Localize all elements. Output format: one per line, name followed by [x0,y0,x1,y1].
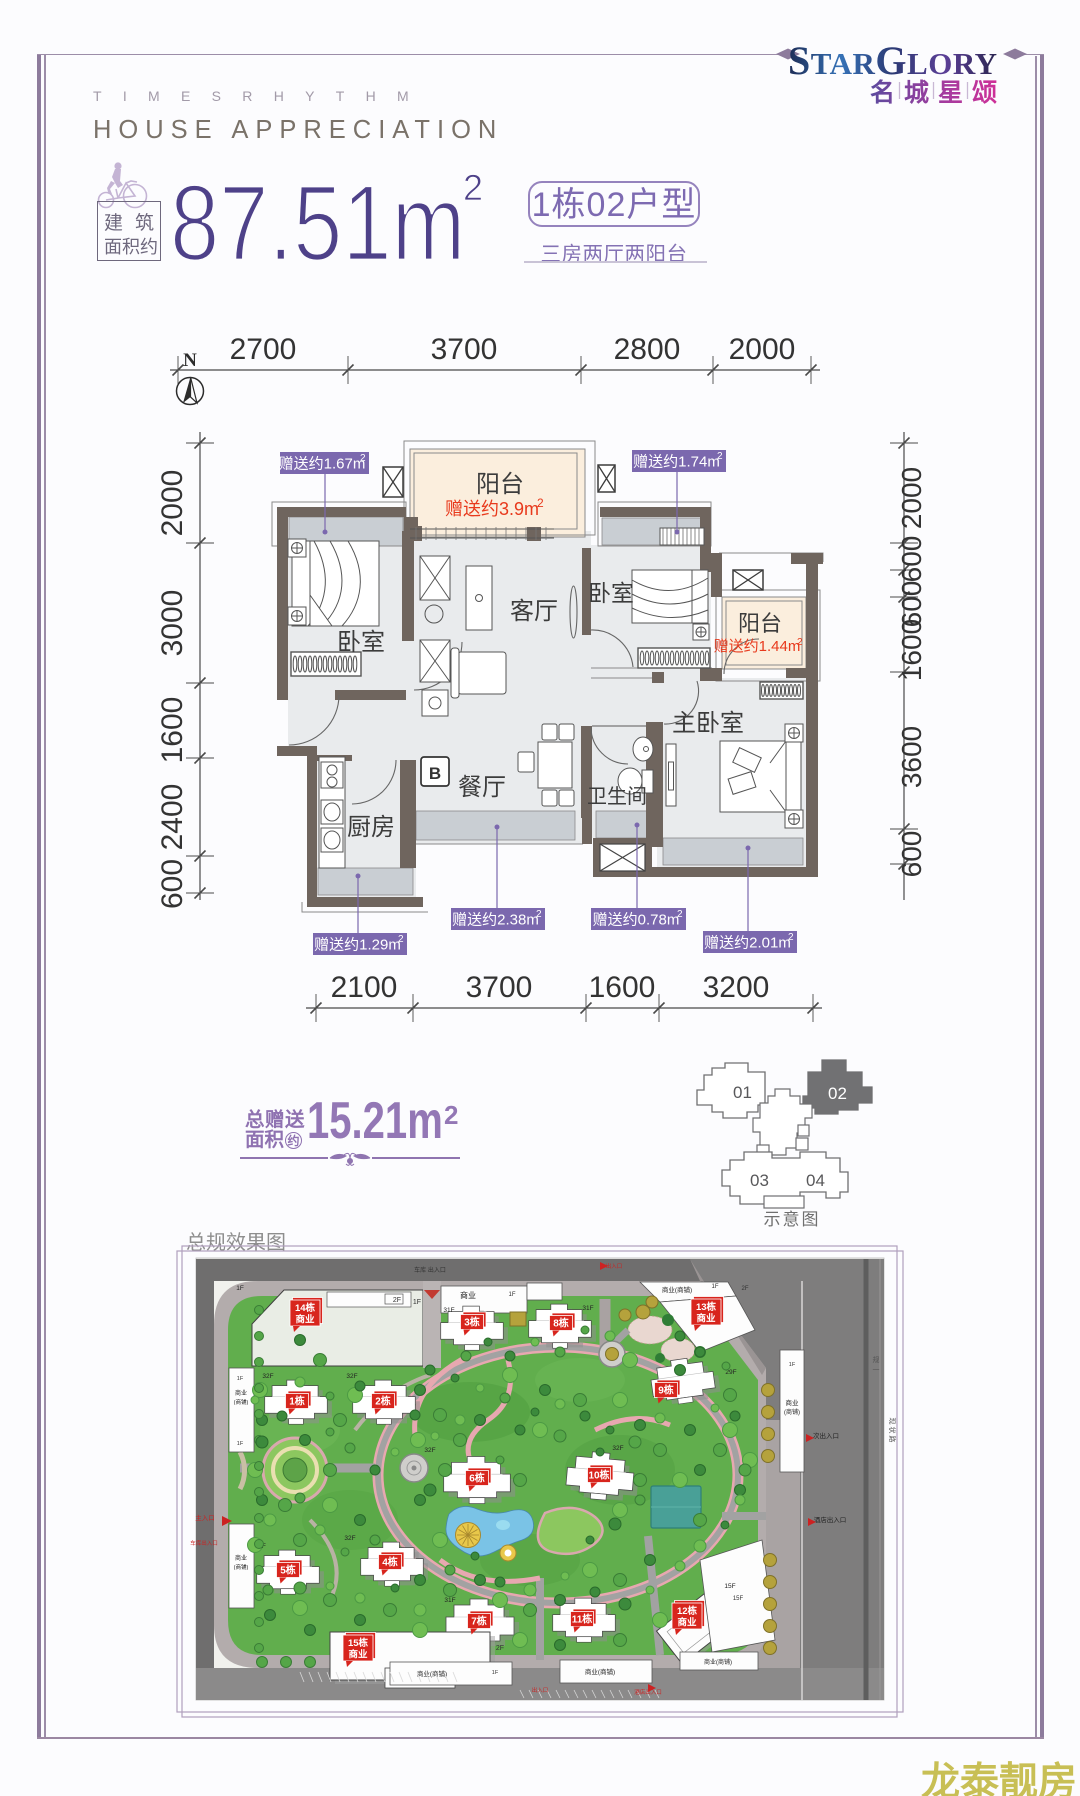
svg-text:7栋: 7栋 [471,1615,487,1628]
svg-text:赠送约1.67m: 赠送约1.67m [279,456,366,473]
svg-text:赠送约2.01m: 赠送约2.01m [704,935,791,952]
svg-text:赠送约2.38m: 赠送约2.38m [452,912,539,929]
svg-text:1600: 1600 [896,619,927,681]
svg-text:32F: 32F [424,1447,435,1454]
svg-text:1F: 1F [789,1362,796,1368]
svg-text:31F: 31F [443,1307,454,1314]
svg-text:1600: 1600 [156,697,189,764]
svg-text:31F: 31F [582,1305,593,1312]
svg-text:赠送约0.78m: 赠送约0.78m [593,912,680,929]
svg-text:酒店出入口: 酒店出入口 [814,1515,847,1524]
svg-text:次出入口: 次出入口 [813,1431,839,1440]
svg-text:卫生间: 卫生间 [587,785,647,808]
svg-text:1F: 1F [236,1285,244,1292]
svg-text:1F: 1F [508,1292,515,1298]
svg-text:2F: 2F [496,1645,504,1652]
svg-text:卧室: 卧室 [588,580,634,606]
svg-text:(商铺): (商铺) [234,1398,249,1406]
svg-text:5栋: 5栋 [280,1564,296,1577]
svg-text:1F: 1F [711,1284,718,1290]
svg-text:600: 600 [896,831,927,878]
svg-text:12栋: 12栋 [677,1605,698,1617]
svg-text:餐厅: 餐厅 [458,774,506,801]
svg-text:1600: 1600 [589,971,656,1004]
svg-text:2F: 2F [393,1297,401,1304]
svg-text:STARGLORY: STARGLORY [788,38,998,83]
svg-text:03: 03 [750,1171,769,1190]
svg-text:商业(商铺): 商业(商铺) [417,1669,447,1678]
svg-text:1F: 1F [237,1441,244,1447]
svg-text:4栋: 4栋 [382,1556,398,1569]
svg-text:1栋: 1栋 [289,1395,305,1408]
svg-text:(商铺): (商铺) [784,1408,800,1416]
svg-text:车库 出入口: 车库 出入口 [414,1266,446,1274]
svg-text:600: 600 [156,859,189,909]
svg-text:13栋: 13栋 [696,1301,717,1313]
svg-text:2: 2 [536,909,542,920]
svg-text:04: 04 [806,1171,825,1190]
svg-text:15F: 15F [724,1583,735,1590]
svg-text:3600: 3600 [896,726,927,788]
svg-text:3栋: 3栋 [464,1316,480,1329]
svg-text:1F: 1F [413,1299,421,1306]
svg-text:14栋: 14栋 [295,1302,316,1314]
svg-text:示意图: 示意图 [764,1210,821,1229]
svg-text:商业: 商业 [460,1290,476,1300]
svg-text:2: 2 [717,451,723,462]
svg-text:商业: 商业 [696,1313,716,1325]
svg-text:2100: 2100 [331,971,398,1004]
svg-text:商业: 商业 [786,1398,800,1407]
svg-text:2F: 2F [741,1286,748,1292]
svg-text:名城星颂: 名城星颂 [870,78,1006,106]
svg-text:3000: 3000 [156,590,189,657]
svg-text:厨房: 厨房 [347,814,395,841]
svg-text:商业(商铺): 商业(商铺) [662,1285,692,1294]
svg-text:10栋: 10栋 [588,1469,609,1482]
svg-text:(商铺): (商铺) [234,1563,249,1571]
svg-text:客厅: 客厅 [510,598,558,625]
svg-text:1F: 1F [237,1376,244,1382]
svg-text:11栋: 11栋 [572,1613,593,1626]
svg-text:2000: 2000 [156,470,189,537]
svg-text:9栋: 9栋 [658,1384,674,1397]
svg-text:32F: 32F [344,1535,355,1542]
svg-text:阳台: 阳台 [476,471,524,498]
svg-text:2: 2 [797,637,803,648]
svg-text:3700: 3700 [431,333,498,366]
svg-text:8栋: 8栋 [553,1317,569,1330]
svg-text:01: 01 [733,1083,752,1102]
svg-text:1F: 1F [492,1670,499,1676]
svg-text:02: 02 [828,1084,847,1103]
svg-text:15F: 15F [733,1596,744,1602]
svg-text:2: 2 [398,934,404,945]
svg-text:600: 600 [896,536,927,583]
svg-text:15栋: 15栋 [348,1637,369,1649]
svg-text:出入口: 出入口 [532,1686,549,1694]
svg-text:商业: 商业 [235,1554,247,1562]
svg-text:2400: 2400 [156,784,189,851]
svg-text:2800: 2800 [614,333,681,366]
svg-text:商业: 商业 [295,1314,315,1326]
svg-text:车库出入口: 车库出入口 [190,1539,218,1547]
svg-text:2: 2 [677,909,683,920]
svg-text:商业: 商业 [677,1617,697,1629]
svg-text:32F: 32F [346,1373,357,1380]
svg-text:主卧室: 主卧室 [672,710,744,737]
svg-text:赠送约1.29m: 赠送约1.29m [314,937,401,954]
svg-text:商业(商铺): 商业(商铺) [585,1667,615,1676]
svg-text:3200: 3200 [703,971,770,1004]
svg-text:2000: 2000 [896,467,927,529]
svg-text:3700: 3700 [466,971,533,1004]
svg-text:32F: 32F [262,1373,273,1380]
svg-text:主入口: 主入口 [195,1513,215,1522]
svg-text:B: B [429,764,441,783]
svg-text:一: 一 [873,1367,880,1374]
svg-text:2: 2 [788,932,794,943]
svg-text:卧室: 卧室 [337,629,385,656]
svg-text:2: 2 [537,496,544,510]
svg-text:商业: 商业 [348,1649,368,1661]
svg-text:出入口: 出入口 [606,1262,623,1270]
svg-text:赠送约1.44m: 赠送约1.44m [714,638,801,655]
svg-text:规: 规 [873,1355,880,1364]
svg-text:31F: 31F [444,1597,455,1604]
svg-text:N: N [183,350,197,371]
svg-text:2700: 2700 [230,333,297,366]
svg-text:6栋: 6栋 [469,1472,485,1485]
svg-text:2: 2 [360,453,366,464]
svg-text:商业(商铺): 商业(商铺) [704,1658,732,1666]
svg-text:赠送约3.9m: 赠送约3.9m [445,499,539,519]
svg-text:2栋: 2栋 [375,1395,391,1408]
svg-text:赠送约1.74m: 赠送约1.74m [633,454,720,471]
svg-text:32F: 32F [612,1445,623,1452]
svg-text:现 状 路: 现 状 路 [888,1418,897,1443]
svg-text:商业: 商业 [235,1389,247,1397]
svg-text:阳台: 阳台 [738,611,782,636]
svg-text:2000: 2000 [729,333,796,366]
